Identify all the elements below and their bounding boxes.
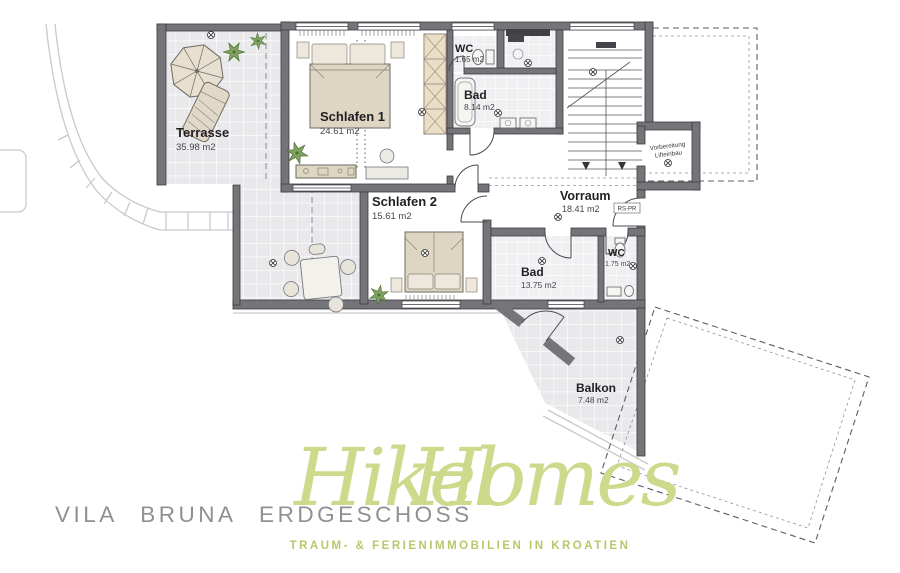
window [358, 23, 420, 30]
svg-text:RS-PR: RS-PR [618, 207, 637, 213]
area-terrasse: 35.98 m2 [176, 142, 216, 153]
sideboard-icon [296, 165, 356, 178]
door-bad1 [470, 131, 494, 155]
floor-plan: Terrasse 35.98 m2 Schlafen 1 24.61 m2 WC… [0, 0, 900, 573]
door-schlafen1 [455, 165, 478, 188]
label-lift: Vorbereitung Lifteinbau [649, 141, 687, 160]
washbasin-icon-wc2 [607, 286, 634, 297]
bed-icon-schlafen2 [391, 232, 477, 292]
label-vorraum: Vorraum [560, 189, 610, 203]
window [402, 301, 460, 308]
label-terrasse: Terrasse [176, 125, 229, 140]
area-vorraum: 18.41 m2 [562, 204, 600, 214]
brand-logo-word2: Homes [409, 431, 679, 524]
label-wc1: WC [455, 43, 473, 55]
wardrobe-icon [424, 34, 446, 134]
staircase [567, 42, 642, 176]
floor-terrasse-lower [240, 184, 360, 300]
window [548, 301, 584, 308]
floor-bad2 [491, 236, 598, 300]
label-balkon: Balkon [576, 381, 616, 395]
window [570, 23, 634, 30]
window [293, 185, 351, 191]
area-bad1: 8.14 m2 [464, 102, 495, 112]
area-schlafen1: 24.61 m2 [320, 126, 360, 137]
area-wc1: 1.65 m2 [455, 55, 484, 64]
label-bad2: Bad [521, 265, 544, 279]
area-schlafen2: 15.61 m2 [372, 211, 412, 222]
brand-tagline: TRAUM- & FERIENIMMOBILIEN IN KROATIEN [290, 540, 631, 552]
window [296, 23, 348, 30]
area-balkon: 7.48 m2 [578, 395, 609, 405]
desk-icon [366, 149, 408, 179]
label-riser: RS-PR [614, 203, 640, 213]
area-wc2: 1.75 m2 [605, 261, 630, 268]
label-schlafen2: Schlafen 2 [372, 194, 437, 209]
label-wc2: WC [608, 248, 625, 259]
label-schlafen1: Schlafen 1 [320, 109, 385, 124]
door-schlafen2 [461, 196, 487, 222]
window [452, 23, 494, 30]
area-bad2: 13.75 m2 [521, 280, 557, 290]
floor-plan-page: Terrasse 35.98 m2 Schlafen 1 24.61 m2 WC… [0, 0, 900, 573]
label-bad1: Bad [464, 88, 487, 102]
footer-branding: VILA BRUNA ERDGESCHOSS Hikel Homes TRAUM… [55, 431, 680, 552]
stool-icon [380, 149, 394, 163]
